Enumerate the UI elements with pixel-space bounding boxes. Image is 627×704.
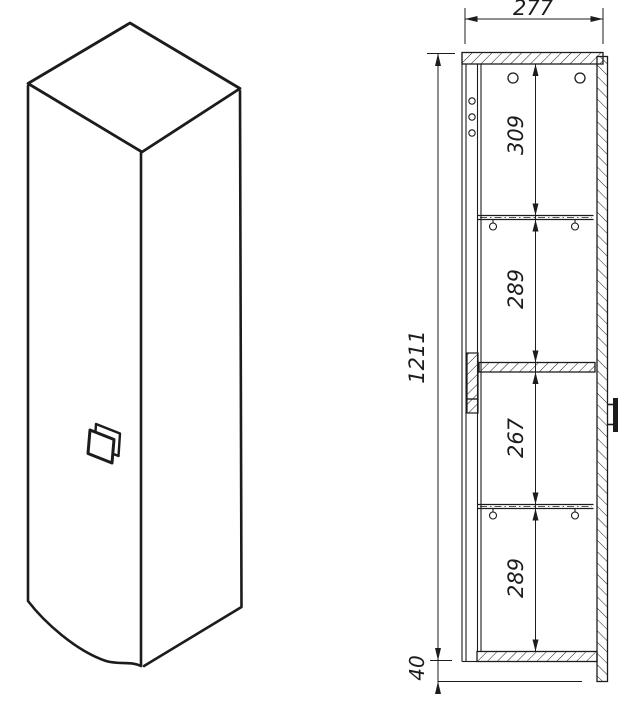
fixed-shelf [479, 363, 595, 373]
arrow-up [435, 54, 441, 67]
cabinet-top-face [28, 23, 240, 152]
cabinet-drawing: 277 1211 309 289 267 289 40 [0, 0, 627, 704]
arrow-right [591, 16, 604, 22]
dim-width-label: 277 [513, 0, 554, 20]
handle-front-square [88, 430, 114, 463]
door-panel [597, 57, 608, 682]
arrow-up [533, 64, 539, 76]
dim-shelf3-label: 267 [504, 417, 528, 458]
dim-height [427, 54, 455, 695]
back-drill-holes [469, 98, 475, 136]
arrow-down [435, 648, 441, 661]
arrow-up [533, 509, 539, 521]
dim-shelf2-label: 289 [504, 269, 528, 309]
bottom-panel [477, 652, 597, 662]
cabinet-left-face [28, 86, 141, 666]
arrow-down [533, 351, 539, 363]
arrow-down [533, 640, 539, 652]
dim-shelf4-label: 289 [504, 558, 528, 598]
arrow-down [533, 493, 539, 505]
mounting-holes [508, 73, 585, 83]
technical-drawing-page: 277 1211 309 289 267 289 40 [0, 0, 627, 704]
dim-compartments [533, 64, 539, 652]
cabinet-right-face [144, 91, 242, 666]
section-view [462, 53, 618, 682]
isometric-view [28, 23, 242, 666]
door-handle-section [608, 398, 619, 432]
drill-hole [469, 130, 475, 136]
mounting-hole [508, 73, 518, 83]
arrow-down [533, 204, 539, 216]
arrow-left [465, 16, 478, 22]
arrow-up [533, 220, 539, 232]
top-panel [462, 53, 603, 65]
mounting-hole [575, 73, 585, 83]
door-handle-knob [88, 424, 120, 463]
dim-bottom-gap-label: 40 [405, 655, 429, 680]
dim-shelf1-label: 309 [504, 115, 528, 155]
arrow-up [435, 682, 441, 695]
drill-hole [469, 98, 475, 104]
dim-height-label: 1211 [405, 330, 429, 383]
wall-bracket [467, 353, 478, 413]
drill-hole [469, 114, 475, 120]
arrow-up [533, 372, 539, 384]
